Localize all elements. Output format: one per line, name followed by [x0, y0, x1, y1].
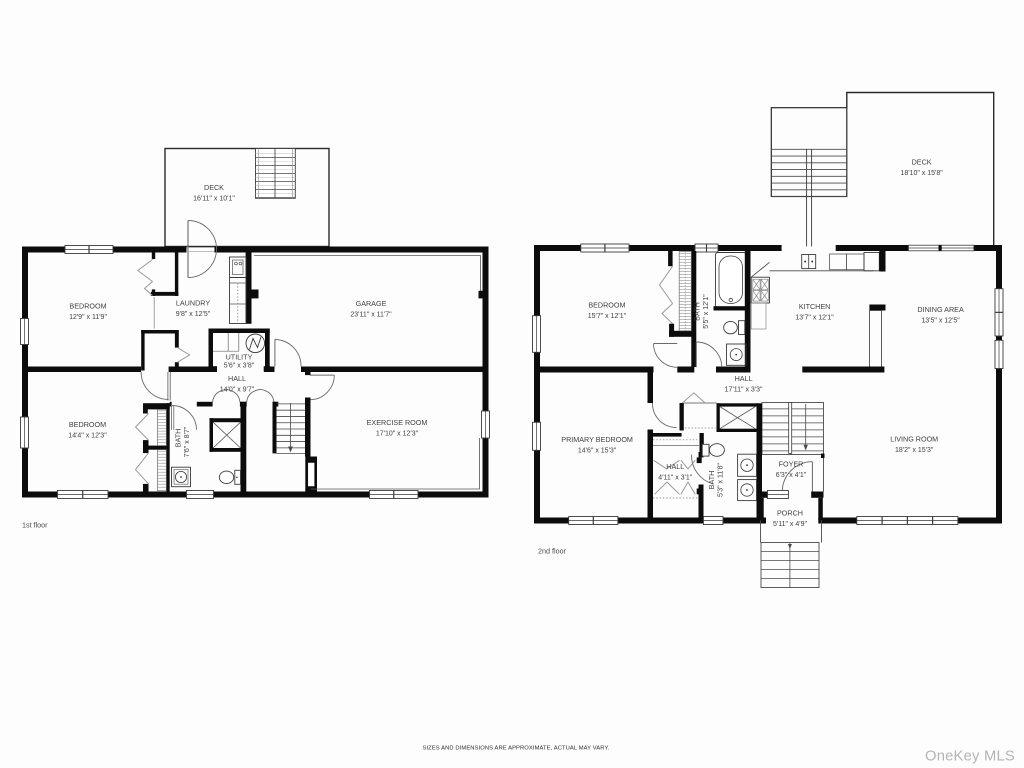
svg-text:FOYER: FOYER — [779, 460, 804, 469]
svg-text:PORCH: PORCH — [777, 508, 803, 517]
svg-text:5'5" x 12'1": 5'5" x 12'1" — [703, 294, 710, 329]
svg-text:OneKey MLS: OneKey MLS — [925, 749, 1015, 765]
svg-text:LAUNDRY: LAUNDRY — [176, 299, 210, 308]
svg-text:6'3" x 4'1": 6'3" x 4'1" — [776, 472, 807, 479]
svg-text:HALL: HALL — [666, 462, 684, 471]
svg-text:17'11" x 3'3": 17'11" x 3'3" — [725, 386, 763, 393]
svg-text:SIZES AND DIMENSIONS ARE APPRO: SIZES AND DIMENSIONS ARE APPROXIMATE, AC… — [423, 746, 610, 752]
svg-text:PRIMARY BEDROOM: PRIMARY BEDROOM — [561, 435, 633, 444]
svg-text:DECK: DECK — [912, 157, 932, 166]
svg-text:18'10" x 15'8": 18'10" x 15'8" — [900, 170, 943, 177]
svg-text:BEDROOM: BEDROOM — [588, 300, 625, 309]
svg-text:EXERCISE ROOM: EXERCISE ROOM — [367, 418, 428, 427]
svg-text:GARAGE: GARAGE — [356, 299, 387, 308]
svg-text:KITCHEN: KITCHEN — [799, 302, 831, 311]
svg-text:UTILITY: UTILITY — [226, 353, 253, 362]
svg-text:14'6" x 15'3": 14'6" x 15'3" — [578, 448, 617, 455]
svg-text:5'3" x 11'8": 5'3" x 11'8" — [718, 462, 725, 496]
svg-text:BATH: BATH — [707, 471, 716, 490]
svg-text:HALL: HALL — [228, 374, 246, 383]
svg-text:BATH: BATH — [173, 429, 182, 448]
svg-text:7'6" x 8'7": 7'6" x 8'7" — [184, 426, 191, 457]
svg-text:BEDROOM: BEDROOM — [69, 302, 106, 311]
svg-text:15'7" x 12'1": 15'7" x 12'1" — [588, 313, 627, 320]
svg-text:DINING AREA: DINING AREA — [917, 305, 964, 314]
svg-text:DECK: DECK — [204, 183, 224, 192]
svg-text:1st floor: 1st floor — [22, 521, 48, 530]
svg-text:LIVING ROOM: LIVING ROOM — [890, 435, 938, 444]
svg-text:2nd floor: 2nd floor — [538, 547, 567, 556]
svg-text:5'11" x 4'9": 5'11" x 4'9" — [773, 521, 807, 528]
svg-text:17'10" x 12'3": 17'10" x 12'3" — [376, 430, 419, 437]
svg-text:5'6" x 3'8": 5'6" x 3'8" — [224, 363, 255, 370]
svg-text:BEDROOM: BEDROOM — [69, 420, 106, 429]
svg-text:HALL: HALL — [735, 374, 753, 383]
svg-text:12'9" x 11'9": 12'9" x 11'9" — [69, 314, 107, 321]
svg-text:18'2" x 15'3": 18'2" x 15'3" — [895, 447, 934, 454]
svg-text:13'5" x 12'5": 13'5" x 12'5" — [921, 317, 960, 324]
svg-text:13'7" x 12'1": 13'7" x 12'1" — [795, 314, 834, 321]
svg-text:BATH: BATH — [692, 302, 701, 321]
svg-text:4'11" x 3'1": 4'11" x 3'1" — [658, 474, 692, 481]
svg-text:23'11" x 11'7": 23'11" x 11'7" — [350, 312, 392, 319]
svg-text:16'11" x 10'1": 16'11" x 10'1" — [193, 196, 235, 203]
svg-text:14'4" x 12'3": 14'4" x 12'3" — [68, 433, 107, 440]
svg-text:14'0" x 9'7": 14'0" x 9'7" — [220, 387, 255, 394]
svg-text:9'8" x 12'5": 9'8" x 12'5" — [176, 311, 211, 318]
